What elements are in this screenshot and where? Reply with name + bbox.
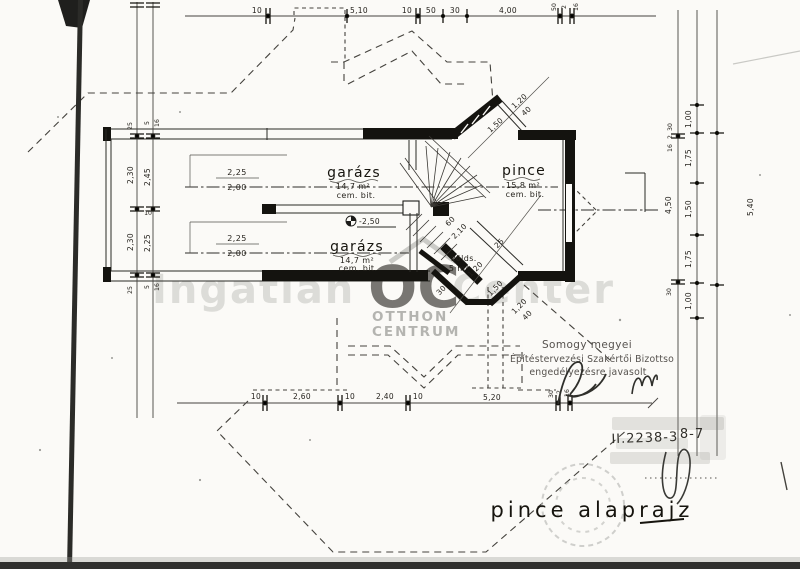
dim-label: 25	[127, 122, 134, 130]
dim-label: 10	[251, 392, 261, 401]
staircase	[400, 136, 490, 260]
dim-label: 30	[667, 123, 674, 131]
room-name: zölds.	[451, 254, 477, 263]
room-finish: cem. bit.	[337, 191, 376, 200]
dimension-labels-bottom: 10 2,60 10 2,40 10 5,20 30 2 16	[251, 389, 571, 402]
dim-label: 2	[561, 5, 568, 9]
dim-label: 5,40	[746, 198, 755, 216]
room-area: 15,8 m²	[506, 181, 540, 190]
dim-label: 4,00	[499, 6, 517, 15]
scan-edge-bottom	[0, 562, 800, 569]
file-number-block: II.2238-3 8-7	[610, 415, 787, 504]
dimension-ticks	[130, 3, 724, 411]
dim-label: 2	[667, 135, 674, 139]
floor-level-value: -2,50	[359, 217, 380, 226]
scanned-blueprint-page: Ingatlan Center OC OTTHON CENTRUM	[0, 0, 800, 569]
dim-label: 2,30	[126, 233, 135, 251]
dim-label: 30	[666, 288, 673, 296]
dim-label: 5,20	[483, 393, 501, 402]
drawing-title: pince alaprajz	[491, 498, 694, 522]
dim-label: 10	[345, 392, 355, 401]
room-area: 14,7 m²	[336, 182, 370, 191]
stamp-line-3: engedélyezésre javasolt	[529, 367, 646, 378]
room-label-garage-top: garázs 14,7 m² cem. bit.	[327, 165, 381, 200]
lintel-den: 2,00	[227, 249, 246, 258]
file-number: II.2238-3	[611, 430, 678, 447]
stamp-line-2: Építéstervezési Szakértői Bizottso	[510, 353, 674, 365]
dim-label: 10	[144, 210, 152, 217]
dim-label: 5	[144, 121, 151, 125]
dim-label: 1,00	[684, 292, 693, 310]
dim-label: 5,10	[350, 6, 368, 15]
room-name: garázs	[327, 165, 381, 181]
dim-label: 2,25	[143, 234, 152, 252]
pen-stroke	[781, 462, 787, 490]
dim-label: 16	[667, 144, 674, 152]
approval-stamp: Somogy megyei Építéstervezési Szakértői …	[510, 339, 674, 404]
scan-corner-blob	[58, 0, 90, 28]
room-label-cellar: pince 15,8 m² cem. bit.	[502, 163, 546, 199]
section-bracket	[625, 173, 645, 212]
dim-label: 60	[443, 214, 457, 228]
cellar-window-niche	[566, 184, 572, 242]
floorplan-drawing: Ingatlan Center OC OTTHON CENTRUM	[0, 0, 800, 569]
dim-label: 1,75	[684, 250, 693, 268]
lintel-num: 2,25	[227, 234, 246, 243]
dim-label: 25	[492, 236, 506, 250]
dim-label: 1,50	[486, 116, 505, 135]
dim-label: 50	[426, 6, 436, 15]
room-area: 5 m²	[449, 264, 469, 273]
lintel-den: 2,00	[227, 183, 246, 192]
dim-label: 2,40	[376, 392, 394, 401]
watermark-brand-2: CENTRUM	[372, 324, 460, 340]
signature-scribble-2	[632, 375, 657, 394]
section-triangle-marker	[572, 186, 597, 236]
watermark-brand-1: OTTHON	[372, 309, 448, 325]
lintel-num: 2,25	[227, 168, 246, 177]
dim-label: 30	[548, 390, 555, 398]
terrace-outline	[217, 401, 628, 552]
dim-label: 2,45	[143, 168, 152, 186]
dimension-lines	[137, 2, 717, 456]
dim-label: 16	[154, 119, 161, 127]
dim-label: 25	[127, 286, 134, 294]
room-name: garázs	[330, 239, 384, 255]
room-name: pince	[502, 163, 546, 179]
dim-label: 1,50	[684, 200, 693, 218]
dim-label: 40	[520, 104, 534, 117]
dim-label: 2,30	[126, 166, 135, 184]
dim-label: 30	[450, 6, 460, 15]
dim-label: 1,00	[684, 110, 693, 128]
scan-scratch	[733, 51, 800, 64]
stamp-line-1: Somogy megyei	[542, 339, 632, 351]
dim-label: 10	[413, 392, 423, 401]
dim-label: 1,75	[684, 149, 693, 167]
dim-label: 10	[402, 6, 412, 15]
dim-label: 50	[551, 3, 558, 11]
dim-label: 4,50	[664, 196, 673, 214]
dim-label: 5	[144, 285, 151, 289]
dim-label: 2,60	[293, 392, 311, 401]
dim-label: 16	[154, 283, 161, 291]
room-finish: cem. bit.	[506, 190, 545, 199]
scan-edge-left	[67, 0, 83, 569]
dim-label: 10	[252, 6, 262, 15]
dim-label: 16	[573, 3, 580, 11]
room-finish: cem. bit.	[339, 264, 378, 273]
sheet-number: 8-7	[680, 427, 704, 442]
